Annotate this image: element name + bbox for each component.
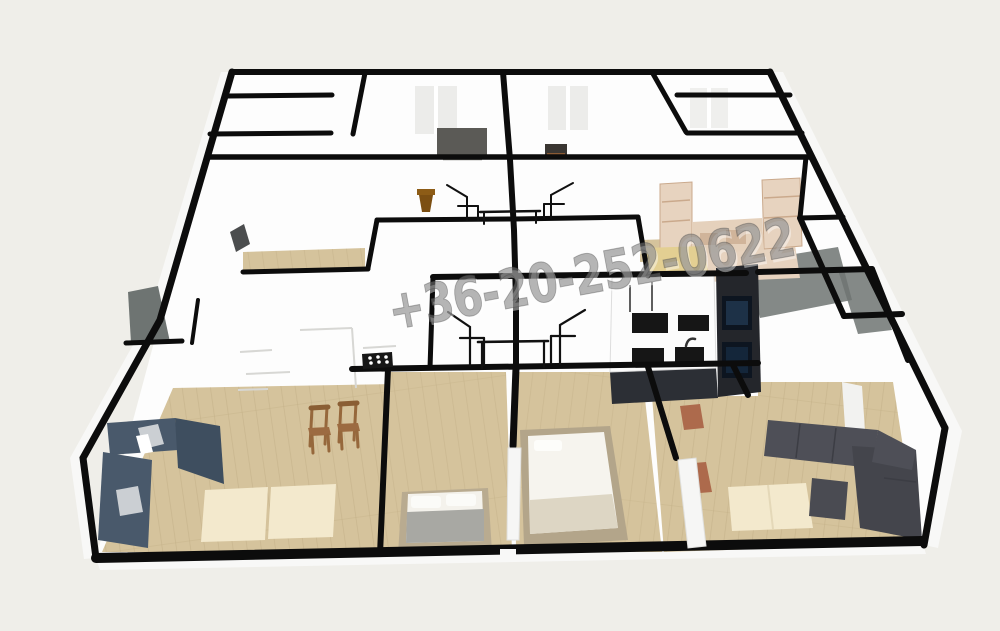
floor-plan-screenshot: +36-20-252-0622 +36-20-252-0622: [0, 0, 1000, 631]
oven-appliance: [726, 301, 748, 325]
door-gap-bottom: [500, 549, 516, 561]
bed-1: [398, 488, 492, 554]
terracotta-door-1: [680, 404, 704, 430]
bed-2: [520, 426, 628, 546]
window-top-1: [415, 86, 457, 134]
bed-2-pillow: [534, 440, 562, 451]
floor-plan-3d-view: +36-20-252-0622 +36-20-252-0622: [0, 0, 1000, 631]
window-top-2: [548, 86, 588, 130]
stove-top: [362, 352, 393, 369]
island-stovetop: [632, 313, 668, 333]
door-panel-1: [507, 448, 521, 540]
bed-1-pillow: [411, 496, 441, 508]
rug-right: [728, 483, 813, 531]
ottoman: [809, 478, 848, 520]
bed-1-pillow: [446, 494, 476, 506]
